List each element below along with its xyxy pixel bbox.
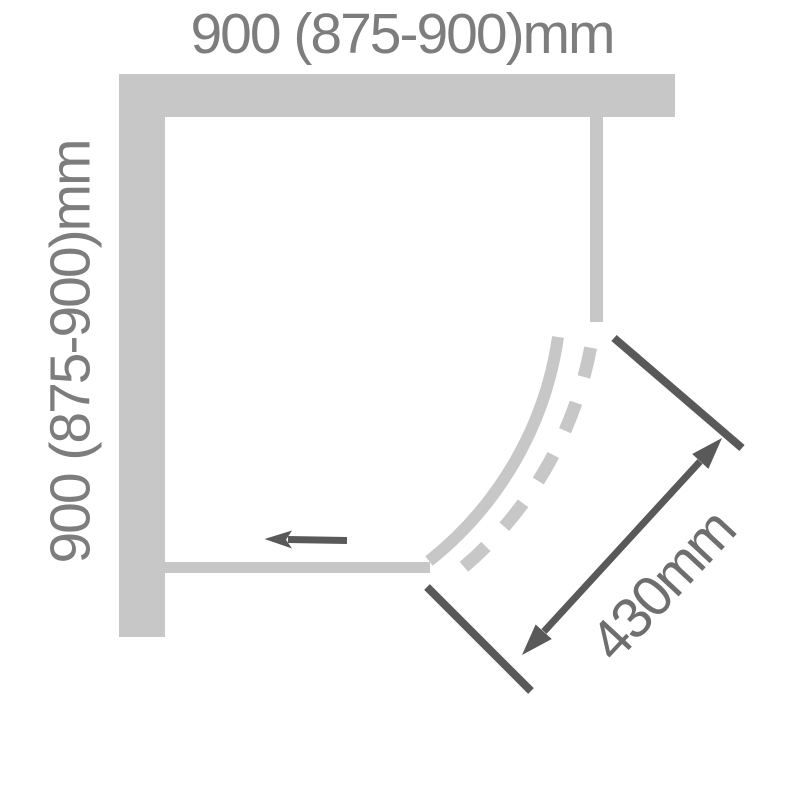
diagram-canvas [0, 0, 800, 800]
dimension-tick-bottom [427, 587, 531, 691]
right-fixed-panel-bar [590, 117, 603, 322]
left-wall-bar [119, 74, 165, 637]
shower-enclosure-diagram: 900 (875-900)mm 900 (875-900)mm 430mm [0, 0, 800, 800]
slide-arrow-head [265, 531, 293, 549]
slide-arrow-shaft [288, 540, 347, 541]
bottom-fixed-panel-bar [165, 562, 430, 573]
slide-direction-arrow-icon [265, 531, 348, 549]
top-wall-bar [119, 74, 675, 117]
dimension-tick-top [614, 338, 742, 448]
curved-front-solid-arc [429, 337, 558, 561]
